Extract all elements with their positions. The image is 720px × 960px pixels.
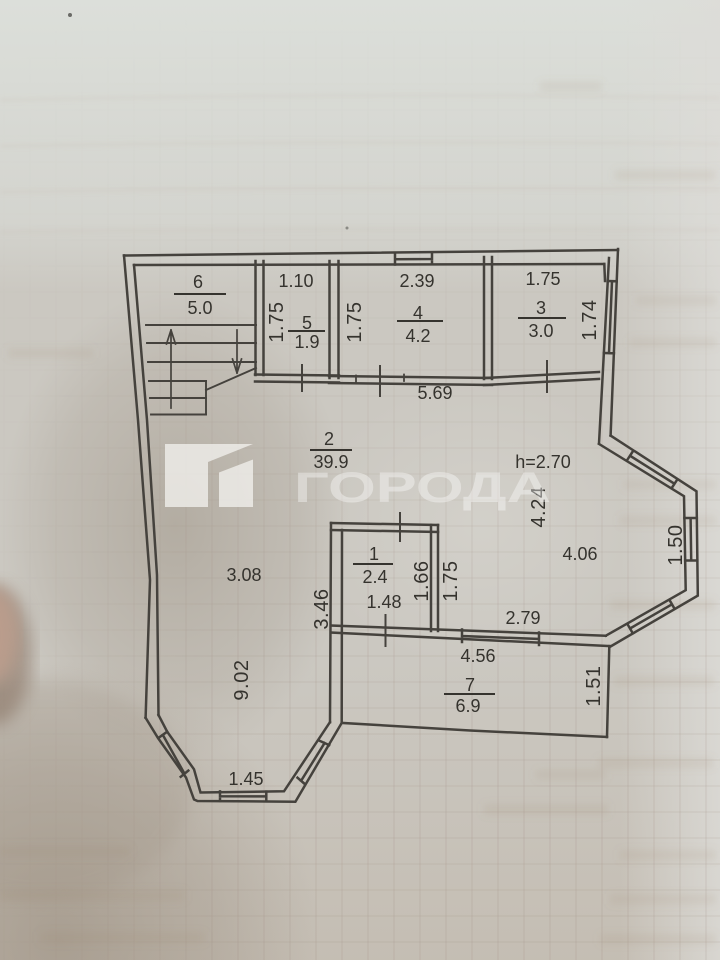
svg-text:1.9: 1.9 [294, 332, 319, 352]
svg-text:3.46: 3.46 [311, 588, 333, 629]
svg-text:1.66: 1.66 [411, 560, 433, 601]
svg-text:2.4: 2.4 [362, 567, 387, 587]
svg-text:1.51: 1.51 [583, 665, 605, 706]
svg-text:1.45: 1.45 [228, 769, 263, 789]
svg-text:7: 7 [465, 675, 475, 695]
svg-text:1.74: 1.74 [579, 299, 601, 340]
svg-text:4.06: 4.06 [562, 544, 597, 564]
svg-text:2.79: 2.79 [505, 608, 540, 628]
svg-text:3.08: 3.08 [226, 565, 261, 585]
svg-text:1.75: 1.75 [266, 301, 288, 342]
svg-text:3.0: 3.0 [528, 321, 553, 341]
svg-text:1.75: 1.75 [525, 269, 560, 289]
svg-text:3: 3 [536, 298, 546, 318]
svg-text:5.69: 5.69 [417, 383, 452, 403]
svg-text:ГОРОДА: ГОРОДА [294, 464, 551, 512]
svg-text:6: 6 [193, 272, 203, 292]
svg-text:4.2: 4.2 [405, 326, 430, 346]
svg-text:6.9: 6.9 [455, 696, 480, 716]
svg-text:1.10: 1.10 [278, 271, 313, 291]
svg-text:1.50: 1.50 [665, 524, 687, 565]
svg-text:1.48: 1.48 [366, 592, 401, 612]
svg-text:4.56: 4.56 [460, 646, 495, 666]
svg-text:2: 2 [324, 429, 334, 449]
svg-text:1.75: 1.75 [440, 560, 462, 601]
svg-text:2.39: 2.39 [399, 271, 434, 291]
svg-text:9.02: 9.02 [231, 659, 253, 700]
svg-text:1.75: 1.75 [344, 301, 366, 342]
svg-text:1: 1 [369, 544, 379, 564]
svg-text:5.0: 5.0 [187, 298, 212, 318]
